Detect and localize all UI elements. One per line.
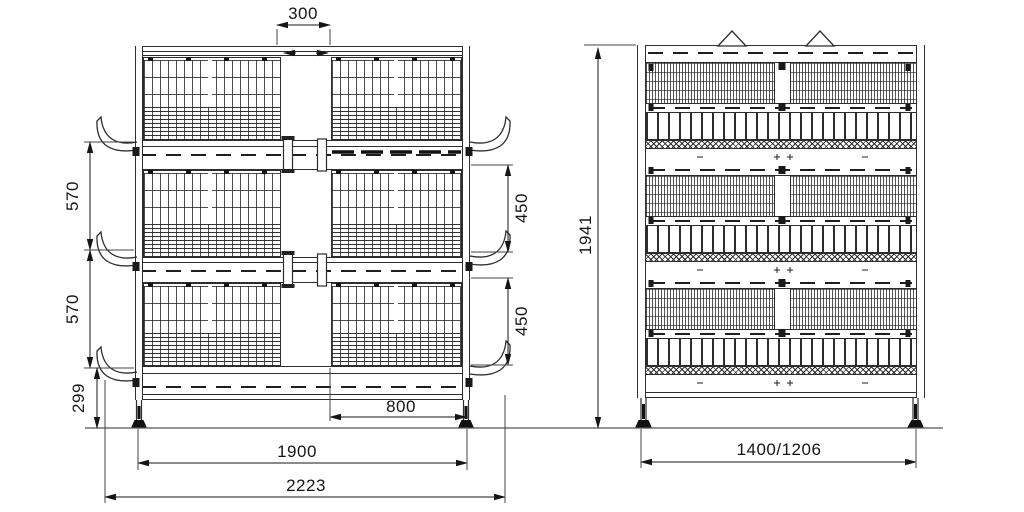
dim-tier-pitch-upper: 570 <box>63 181 83 211</box>
legs-and-feet <box>131 398 924 428</box>
side-tier3-belt <box>646 366 916 375</box>
side-tier2-tray <box>646 262 916 279</box>
drawing-canvas: 300 570 570 450 450 299 1941 800 1900 22… <box>0 0 1024 512</box>
front-tier2-right-mesh <box>331 170 462 257</box>
front-right-post <box>462 46 470 400</box>
front-tier3-left-mesh <box>143 283 281 366</box>
dim-tier-pitch-lower: 570 <box>63 294 83 324</box>
front-band2 <box>135 257 470 283</box>
dim-overall-height: 1941 <box>576 215 596 255</box>
side-roof-triangles <box>718 31 834 46</box>
side-left-post <box>637 45 646 398</box>
dim-tier-height-low: 450 <box>512 306 532 336</box>
side-tier2-belt <box>646 253 916 262</box>
dim-overall-width: 2223 <box>286 476 326 496</box>
front-band1 <box>135 140 470 170</box>
front-tier3-right-mesh <box>331 283 462 366</box>
front-tier1-left-mesh <box>143 57 281 140</box>
dim-top-gap: 300 <box>288 4 318 24</box>
side-right-post <box>916 45 925 398</box>
front-tier1-right-mesh <box>331 57 462 140</box>
front-tier2-left-mesh <box>143 170 281 257</box>
front-top-rail <box>135 46 470 56</box>
side-tier1-mesh <box>646 62 916 104</box>
side-bottom-rail <box>637 392 925 398</box>
side-top-dash <box>648 52 914 54</box>
dim-depth: 1400/1206 <box>737 440 822 460</box>
side-tier3-feeder-bars <box>646 338 916 366</box>
side-tier2-mesh <box>646 175 916 217</box>
front-left-post <box>135 46 143 400</box>
side-tier3-tray <box>646 375 916 392</box>
dim-trough-offset: 800 <box>386 397 416 417</box>
side-tier2-feeder-bars <box>646 225 916 253</box>
dim-tier-height-mid: 450 <box>512 193 532 223</box>
side-tier1-belt <box>646 140 916 149</box>
side-tier1-feeder-bars <box>646 112 916 140</box>
front-band3 <box>135 366 470 400</box>
side-tier1-tray <box>646 149 916 166</box>
side-tier3-mesh <box>646 288 916 330</box>
dim-leg-span: 1900 <box>277 442 317 462</box>
dim-leg-height: 299 <box>69 383 89 413</box>
